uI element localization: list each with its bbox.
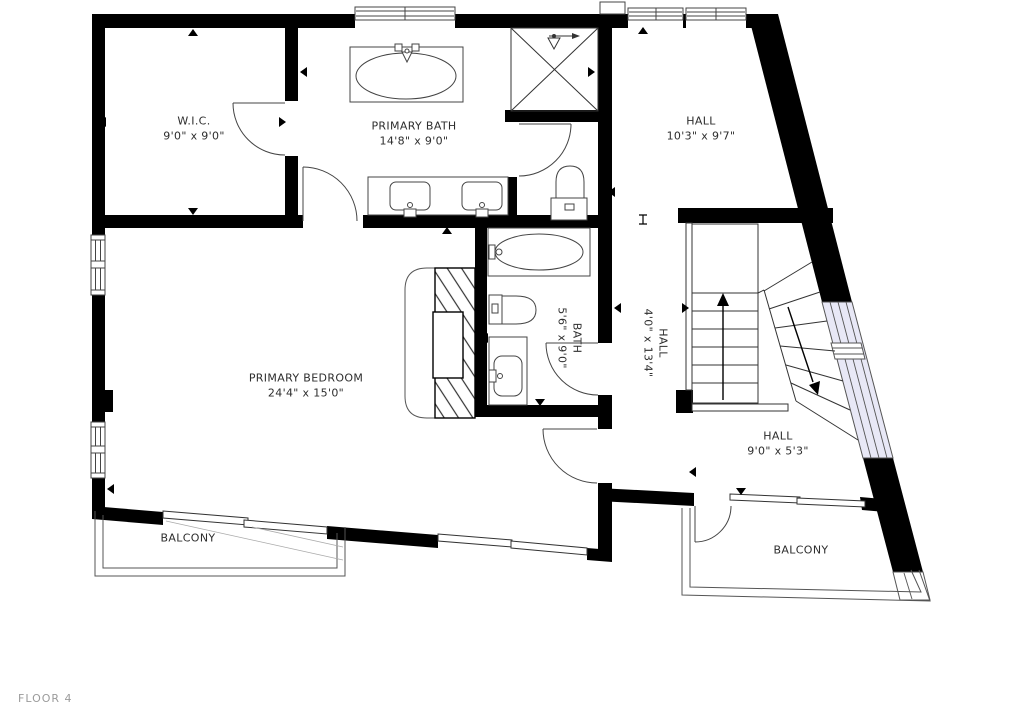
room-dims: 14'8" x 9'0" <box>371 134 456 149</box>
room-label-hall-mid: HALL 4'0" x 13'4" <box>640 309 669 378</box>
room-label-bath: BATH 5'6" x 9'0" <box>554 307 583 369</box>
room-name: BATH <box>569 307 584 369</box>
room-name: HALL <box>667 114 736 129</box>
floor-plan-drawing <box>0 0 1024 724</box>
room-label-wic: W.I.C. 9'0" x 9'0" <box>163 114 225 143</box>
room-label-primary-bath: PRIMARY BATH 14'8" x 9'0" <box>371 119 456 148</box>
room-dims: 4'0" x 13'4" <box>640 309 655 378</box>
room-label-hall-lower: HALL 9'0" x 5'3" <box>747 429 809 458</box>
room-name: W.I.C. <box>163 114 225 129</box>
primary-bathtub-icon <box>350 44 463 102</box>
room-name: HALL <box>655 309 670 378</box>
fireplace-icon <box>405 268 475 418</box>
walls <box>92 14 923 572</box>
room-dims: 24'4" x 15'0" <box>249 386 363 401</box>
room-name: BALCONY <box>774 544 829 559</box>
room-dims: 9'0" x 5'3" <box>747 444 809 459</box>
wc-toilet-icon <box>551 166 587 220</box>
floor-label: FLOOR 4 <box>18 692 73 705</box>
room-dims: 10'3" x 9'7" <box>667 129 736 144</box>
toilet-icon <box>489 295 536 324</box>
room-dims: 9'0" x 9'0" <box>163 129 225 144</box>
room-label-primary-bedroom: PRIMARY BEDROOM 24'4" x 15'0" <box>249 371 363 400</box>
room-name: PRIMARY BEDROOM <box>249 371 363 386</box>
room-name: BALCONY <box>161 532 216 547</box>
shower-icon <box>511 28 598 111</box>
room-name: PRIMARY BATH <box>371 119 456 134</box>
room-name: HALL <box>747 429 809 444</box>
room-dims: 5'6" x 9'0" <box>554 307 569 369</box>
room-label-balcony-left: BALCONY <box>161 532 216 547</box>
stairs-down-arrow-icon <box>788 307 820 395</box>
room-label-hall-upper: HALL 10'3" x 9'7" <box>667 114 736 143</box>
sink-icon <box>489 337 527 405</box>
room-label-balcony-right: BALCONY <box>774 544 829 559</box>
floor-plan-page: W.I.C. 9'0" x 9'0" PRIMARY BATH 14'8" x … <box>0 0 1024 724</box>
double-vanity-icon <box>368 177 508 217</box>
bathtub-icon <box>488 228 590 276</box>
